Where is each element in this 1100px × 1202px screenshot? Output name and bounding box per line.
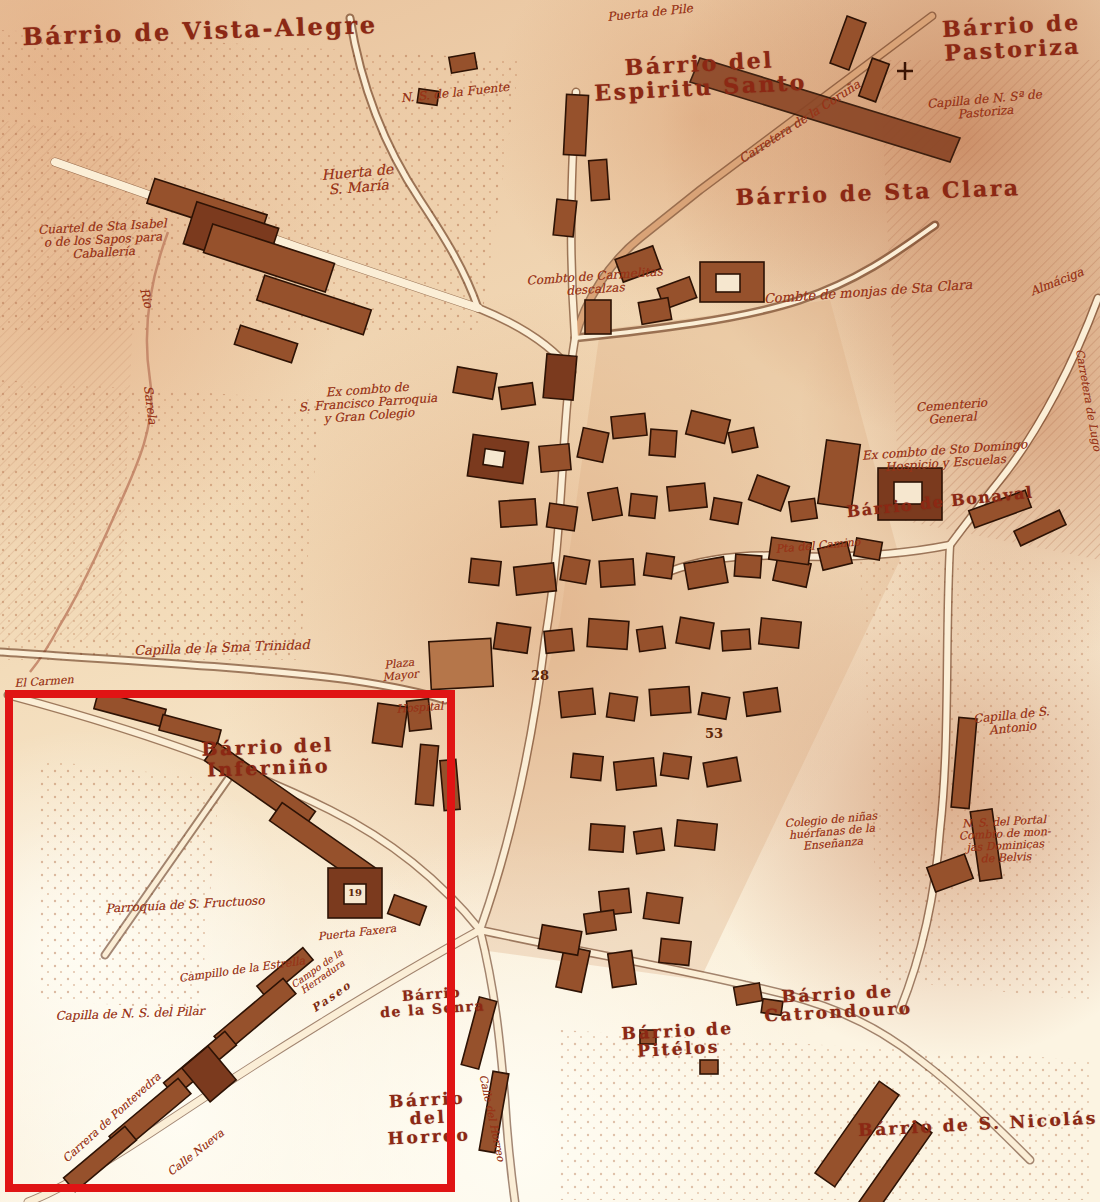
map-label: Almáciga	[1028, 265, 1085, 298]
map-label: Carretera de Lugo	[1073, 348, 1100, 452]
map-label: N. S. de la Fuente	[400, 81, 510, 105]
map-label: Carretera de la Coruña	[737, 78, 863, 166]
highlight-rectangle	[5, 690, 455, 1192]
map-label: Puerta de Pile	[607, 2, 694, 24]
map-label: Combto de Carmelitas descalzas	[526, 265, 664, 300]
map-label: N. S. del Portal Combto de mon- jas Domi…	[958, 814, 1052, 866]
map-label: Capilla de S. Antonio	[972, 705, 1051, 739]
map-label: Bárrio de S. Nicolás	[858, 1109, 1099, 1140]
map-label: Plaza Mayor	[381, 656, 419, 683]
map-label: Colegio de niñas huérfanas de la Enseñan…	[784, 810, 879, 854]
map-viewport: Bárrio de Vista-AlegrePuerta de PileBárr…	[0, 0, 1100, 1202]
map-label: Bárrio de Catrondouro	[763, 981, 913, 1025]
map-label: Sarela	[141, 385, 159, 426]
map-label: Bárrio de Sta Clara	[735, 176, 1021, 210]
map-label: Bárrio de Vista-Alegre	[22, 12, 378, 50]
map-label: Ex combto de S. Francisco Parroquia y Gr…	[297, 379, 438, 427]
map-label: Cementerio General	[916, 397, 989, 428]
map-label: Rio	[137, 287, 155, 310]
map-label: Ex combto de Sto Domingo Hospicio y Escu…	[862, 438, 1029, 475]
map-label: Combte de monjas de Sta Clara	[763, 278, 972, 307]
map-label: Bárrio de Bonaval	[846, 484, 1034, 521]
map-label: Calle del Horreo	[477, 1074, 506, 1163]
map-label: Pta del Camino	[775, 536, 861, 555]
map-label: Cuartel de Sta Isabel o de los Sapos par…	[38, 217, 169, 263]
map-label: Bárrio de Pitélos	[621, 1019, 735, 1062]
map-label: Huerta de S. María	[321, 162, 395, 198]
map-label: El Carmen	[14, 674, 74, 690]
map-label: Capilla de la Sma Trinidad	[134, 638, 310, 658]
map-label: 28	[531, 669, 549, 683]
map-label: Capilla de N. Sª de Pastoriza	[927, 88, 1044, 124]
map-label: Bárrio de Pastoriza	[942, 11, 1083, 66]
map-label: Bárrio del Espiritu Santo	[593, 47, 808, 106]
map-label: 53	[705, 727, 723, 741]
